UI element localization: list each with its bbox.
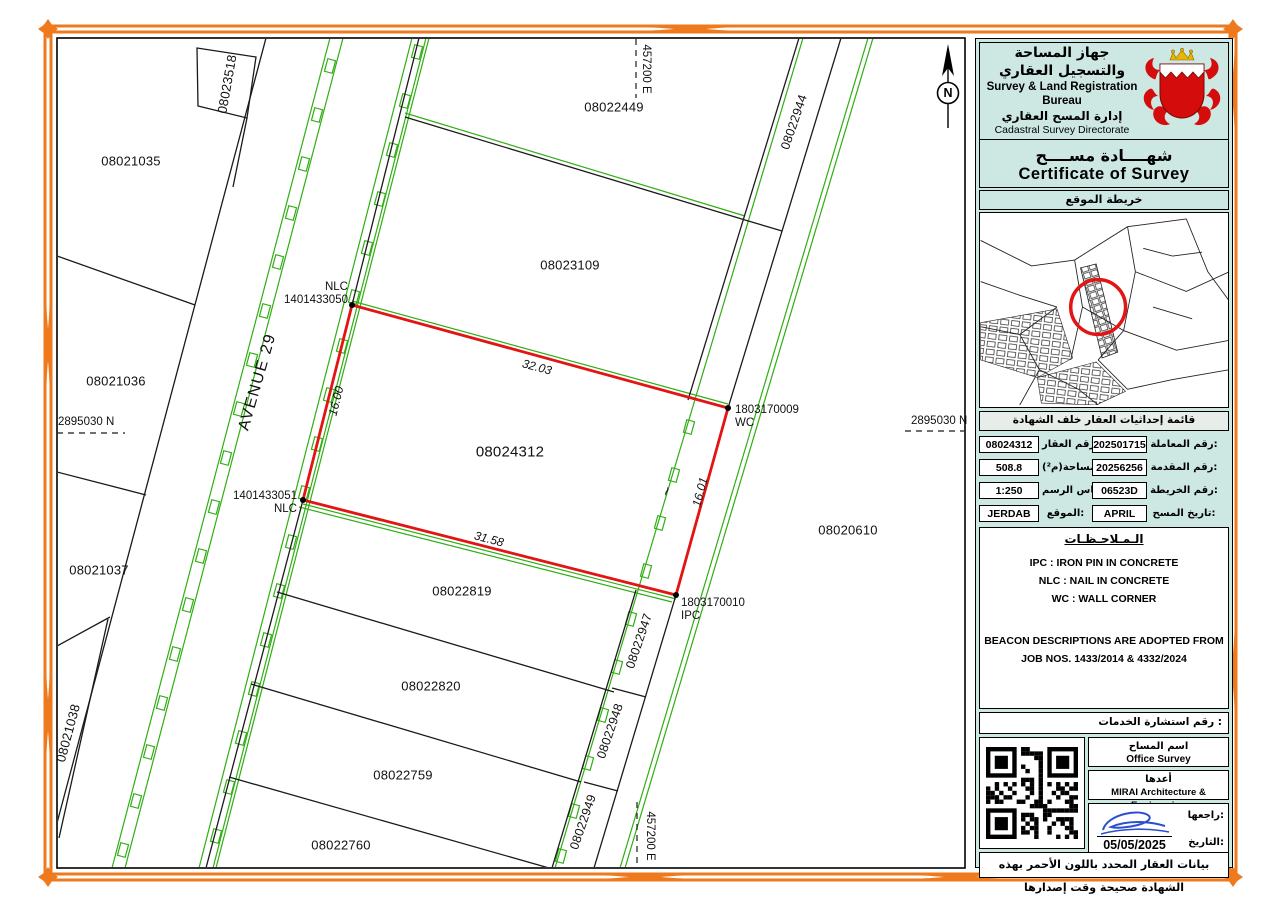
beacon-label-ipc: 1803170010 IPC bbox=[681, 597, 745, 623]
table-row: 08024312 رقم العقار: 202501715 رقم المعا… bbox=[979, 433, 1229, 456]
table-row: 508.8 المساحة(م²): 20256256 رقم المقدمة: bbox=[979, 456, 1229, 479]
prepared-by-box: أعدها MIRAI Architecture & Engineering bbox=[1088, 770, 1229, 800]
beacon-id: 1401433050 bbox=[246, 294, 348, 307]
scale-label: مقياس الرسم: bbox=[1042, 485, 1089, 496]
bahrain-emblem bbox=[1140, 48, 1224, 134]
application-number-value: 20256256 bbox=[1092, 459, 1147, 476]
subject-plot-label: 08024312 bbox=[476, 444, 544, 461]
plot-number-value: 08024312 bbox=[979, 436, 1039, 453]
plot-label: 08022449 bbox=[584, 100, 643, 115]
beacon-id: 1401433051 bbox=[195, 490, 297, 503]
beacon-id: 1803170009 bbox=[735, 404, 799, 417]
beacon-label-nlc-top: NLC 1401433050 bbox=[246, 281, 348, 307]
area-value: 508.8 bbox=[979, 459, 1039, 476]
plot-label: 08022759 bbox=[373, 768, 432, 783]
plot-label: 08023109 bbox=[540, 258, 599, 273]
coords-note-bar: قائمة إحداثيات العقار خلف الشهادة bbox=[979, 411, 1229, 431]
beacon-type: IPC bbox=[681, 610, 745, 623]
beacon-id: 1803170010 bbox=[681, 597, 745, 610]
surveyor-box: اسم المساح Office Survey bbox=[1088, 737, 1229, 767]
transaction-number-label: رقم المعاملة: bbox=[1150, 439, 1218, 450]
beacon-note-line2: JOB NOS. 1433/2014 & 4332/2024 bbox=[980, 650, 1228, 668]
bureau-header: جهاز المساحة والتسجيل العقاري Survey & L… bbox=[979, 42, 1229, 188]
beacon-type: NLC bbox=[195, 503, 297, 516]
beacon-label-wc: 1803170009 WC bbox=[735, 404, 799, 430]
legend-wc: WC : WALL CORNER bbox=[980, 590, 1228, 608]
validity-note: بيانات العقار المحدد باللون الأحمر بهذه … bbox=[979, 852, 1229, 878]
legend-nlc: NLC : NAIL IN CONCRETE bbox=[980, 572, 1228, 590]
plot-label: 08022820 bbox=[401, 679, 460, 694]
area-label: المساحة(م²): bbox=[1042, 462, 1089, 473]
location-value: JERDAB bbox=[979, 505, 1039, 522]
prepared-by-label: أعدها bbox=[1089, 773, 1228, 786]
plot-number-label: رقم العقار: bbox=[1042, 439, 1089, 450]
directorate-name-english: Cadastral Survey Directorate bbox=[984, 124, 1140, 137]
plot-label: 08020610 bbox=[818, 523, 877, 538]
map-number-label: رقم الخريطة: bbox=[1150, 485, 1218, 496]
application-number-label: رقم المقدمة: bbox=[1150, 462, 1218, 473]
beacon-note-line1: BEACON DESCRIPTIONS ARE ADOPTED FROM bbox=[980, 632, 1228, 650]
services-consultation-field: رقم استشارة الخدمات : bbox=[979, 712, 1229, 734]
transaction-number-value: 202501715 bbox=[1092, 436, 1147, 453]
notes-title: الـمـلاحـظـات bbox=[980, 532, 1228, 546]
qr-code-box bbox=[979, 737, 1085, 849]
easting-label-top: 457200 E bbox=[640, 44, 652, 93]
plot-label: 08021037 bbox=[69, 563, 128, 578]
signature bbox=[1093, 806, 1177, 836]
easting-label-bottom: 457200 E bbox=[644, 811, 656, 860]
date-label: التاريخ: bbox=[1180, 837, 1224, 848]
northing-label-right: 2895030 N bbox=[911, 415, 967, 427]
plot-label: 08022819 bbox=[432, 584, 491, 599]
certificate-sidebar: جهاز المساحة والتسجيل العقاري Survey & L… bbox=[975, 38, 1233, 868]
review-date: 05/05/2025 bbox=[1097, 836, 1172, 852]
location-minimap bbox=[979, 212, 1229, 408]
legend-ipc: IPC : IRON PIN IN CONCRETE bbox=[980, 554, 1228, 572]
beacon-type: WC bbox=[735, 417, 799, 430]
table-row: JERDAB الموقع: APRIL 2025 تاريخ المسح: bbox=[979, 502, 1229, 525]
map-number-value: 06523D bbox=[1092, 482, 1147, 499]
plot-label: 08021035 bbox=[101, 154, 160, 169]
certificate-title-english: Certificate of Survey bbox=[980, 165, 1228, 184]
survey-date-value: APRIL 2025 bbox=[1092, 505, 1147, 522]
location-label: الموقع: bbox=[1042, 508, 1089, 519]
bureau-name-arabic: جهاز المساحة والتسجيل العقاري bbox=[984, 45, 1140, 80]
certificate-title-block: شهــــادة مســــح Certificate of Survey bbox=[980, 140, 1228, 190]
beacon-label-nlc-bottom: 1401433051 NLC bbox=[195, 490, 297, 516]
table-row: 1:250 مقياس الرسم: 06523D رقم الخريطة: bbox=[979, 479, 1229, 502]
bureau-titles: جهاز المساحة والتسجيل العقاري Survey & L… bbox=[984, 45, 1140, 137]
location-map-caption: خريطة الموقع bbox=[979, 190, 1229, 210]
survey-data-table: 08024312 رقم العقار: 202501715 رقم المعا… bbox=[979, 433, 1229, 525]
scale-value: 1:250 bbox=[979, 482, 1039, 499]
certificate-of-survey-page: { "colors": { "border_orange": "#ef7a1e"… bbox=[0, 0, 1280, 905]
signoff-section: اسم المساح Office Survey أعدها MIRAI Arc… bbox=[979, 737, 1229, 849]
beacon-type: NLC bbox=[246, 281, 348, 294]
qr-code bbox=[986, 747, 1078, 839]
notes-box: الـمـلاحـظـات IPC : IRON PIN IN CONCRETE… bbox=[979, 527, 1229, 709]
review-box: 05/05/2025 راجعها: التاريخ: bbox=[1088, 803, 1229, 855]
plot-label: 08021036 bbox=[86, 374, 145, 389]
bureau-name-english: Survey & Land Registration Bureau bbox=[984, 80, 1140, 109]
certificate-title-arabic: شهــــادة مســــح bbox=[980, 146, 1228, 165]
plot-label: 08022760 bbox=[311, 838, 370, 853]
northing-label-left: 2895030 N bbox=[58, 416, 114, 428]
reviewed-by-label: راجعها: bbox=[1180, 810, 1224, 821]
north-letter: N bbox=[943, 86, 952, 100]
directorate-name-arabic: إدارة المسح العقاري bbox=[984, 109, 1140, 124]
survey-date-label: تاريخ المسح: bbox=[1150, 508, 1218, 519]
surveyor-value: Office Survey bbox=[1089, 753, 1228, 766]
surveyor-label: اسم المساح bbox=[1089, 740, 1228, 753]
